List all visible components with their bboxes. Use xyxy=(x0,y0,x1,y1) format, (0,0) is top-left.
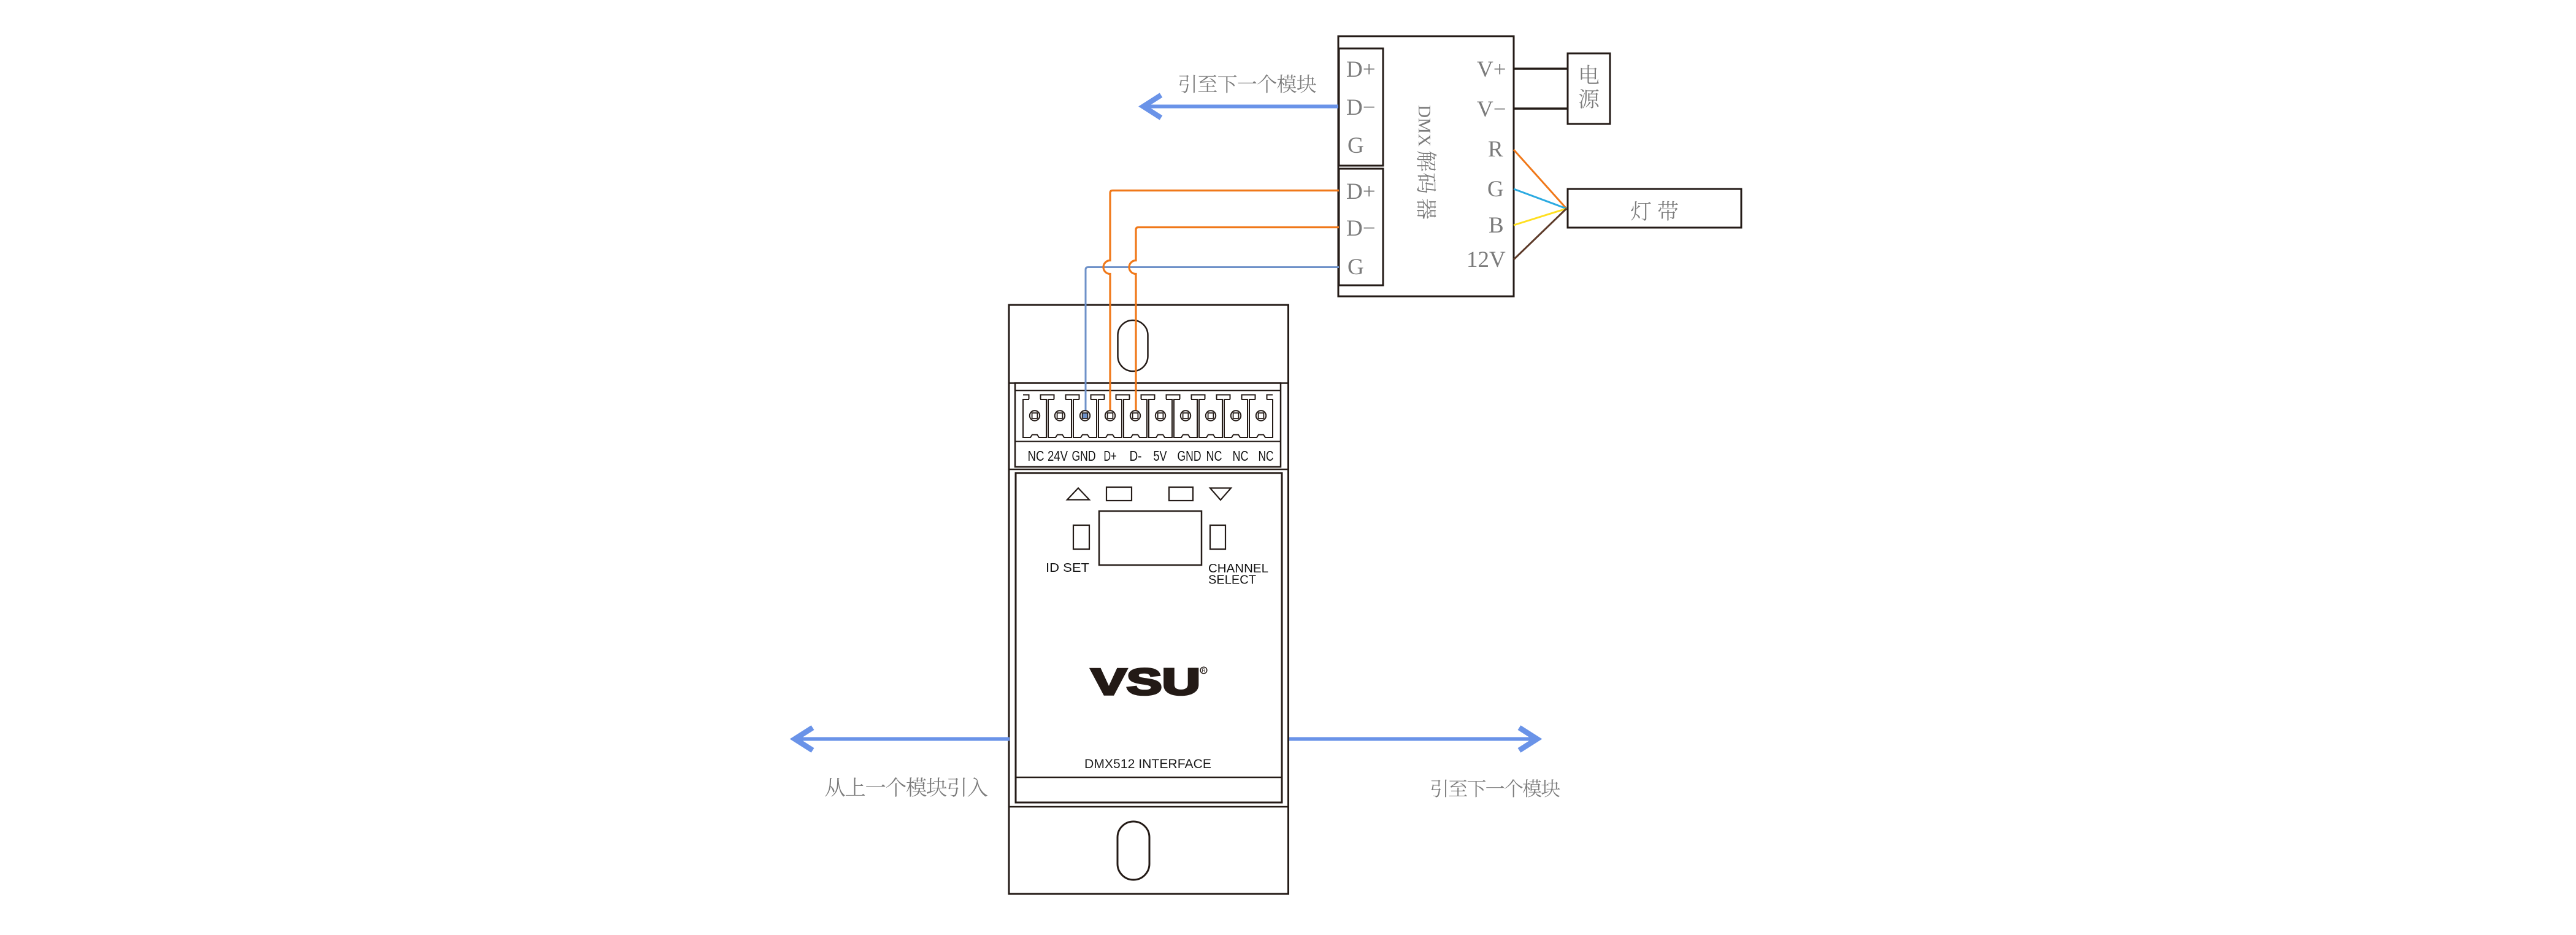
svg-text:GND: GND xyxy=(1072,448,1096,464)
svg-text:V−: V− xyxy=(1477,97,1506,122)
svg-text:B: B xyxy=(1489,213,1504,238)
svg-text:5V: 5V xyxy=(1154,448,1168,464)
svg-text:SELECT: SELECT xyxy=(1208,573,1256,587)
svg-text:R: R xyxy=(1488,137,1503,162)
svg-text:ID SET: ID SET xyxy=(1046,561,1089,575)
svg-text:D+: D+ xyxy=(1346,179,1376,204)
svg-text:R: R xyxy=(1202,668,1205,674)
svg-text:D+: D+ xyxy=(1104,448,1117,464)
svg-text:NC: NC xyxy=(1028,448,1045,464)
svg-text:NC: NC xyxy=(1233,448,1249,464)
svg-text:12V: 12V xyxy=(1466,247,1506,272)
svg-text:NC: NC xyxy=(1259,448,1274,464)
svg-text:VSU: VSU xyxy=(1091,661,1200,702)
svg-text:GND: GND xyxy=(1178,448,1202,464)
svg-text:D+: D+ xyxy=(1346,57,1376,82)
svg-text:DMX512 INTERFACE: DMX512 INTERFACE xyxy=(1084,757,1211,771)
svg-text:DMX: DMX xyxy=(1414,105,1434,147)
svg-text:V+: V+ xyxy=(1477,57,1506,82)
svg-text:G: G xyxy=(1347,255,1364,280)
svg-text:24V: 24V xyxy=(1048,448,1068,464)
svg-text:D−: D− xyxy=(1346,216,1376,241)
svg-text:G: G xyxy=(1487,177,1504,202)
svg-text:G: G xyxy=(1347,133,1364,158)
svg-text:D−: D− xyxy=(1346,95,1376,120)
svg-text:NC: NC xyxy=(1206,448,1222,464)
svg-text:D-: D- xyxy=(1130,448,1142,464)
